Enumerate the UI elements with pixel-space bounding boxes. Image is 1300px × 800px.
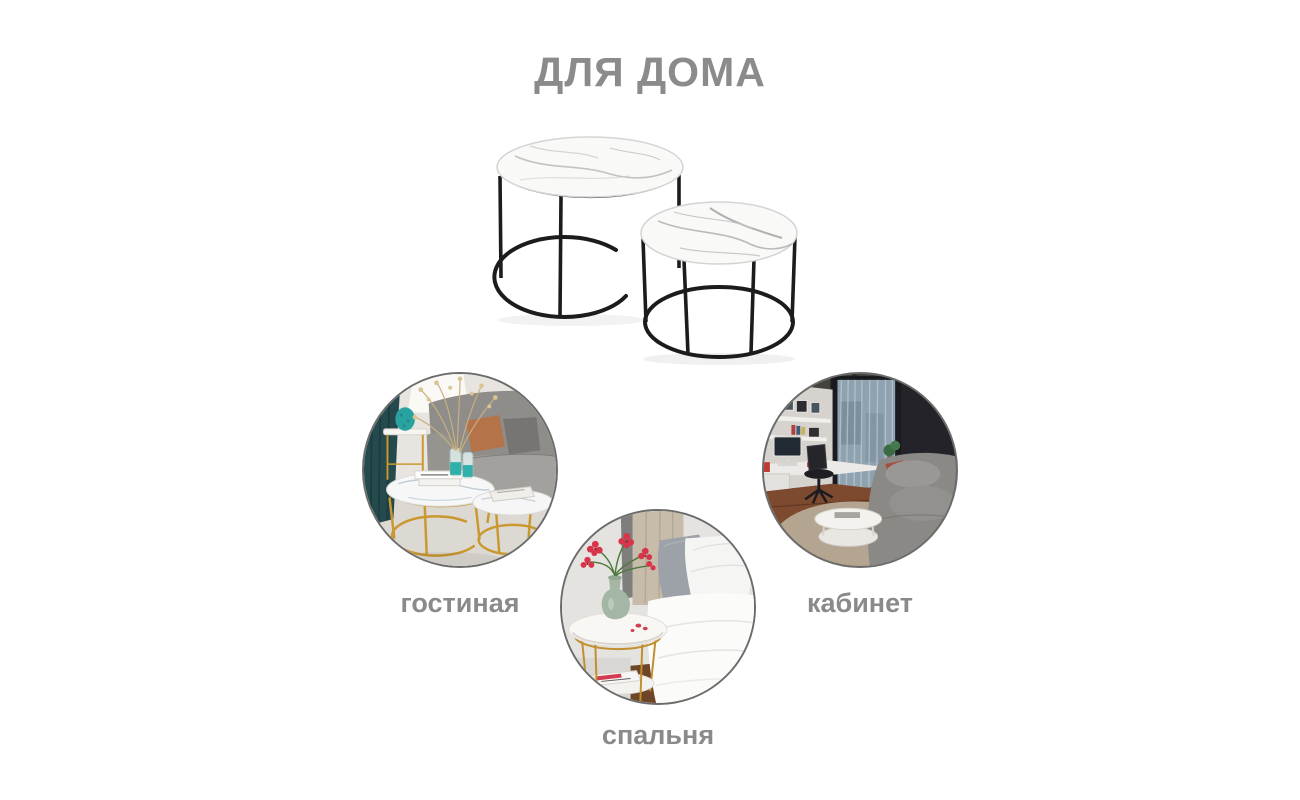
orange-pillow — [466, 415, 505, 452]
monitor — [774, 437, 801, 457]
duvet — [647, 593, 754, 703]
category-photo-bedroom — [560, 509, 756, 705]
bed — [647, 535, 754, 703]
office-scene — [764, 374, 956, 566]
curtain-edge — [621, 511, 635, 599]
category-label-office: кабинет — [760, 590, 960, 617]
page-title: ДЛЯ ДОМА — [0, 49, 1300, 96]
book-on-table — [835, 512, 860, 518]
red-accent — [764, 462, 770, 472]
category-photo-living-room — [362, 372, 558, 568]
lounge-chair — [868, 453, 956, 566]
living-room-scene — [364, 374, 556, 566]
small-table — [641, 202, 797, 365]
teal-vase — [395, 407, 415, 431]
category-label-bedroom: спальня — [558, 722, 758, 749]
gray-pillow — [503, 417, 540, 454]
category-photo-office — [762, 372, 958, 568]
product-image-nesting-tables — [460, 118, 880, 373]
nesting-tables-illustration — [460, 118, 880, 373]
category-label-living-room: гостиная — [360, 590, 560, 617]
product-infographic: ДЛЯ ДОМА — [0, 0, 1300, 800]
bedroom-scene — [562, 511, 754, 703]
